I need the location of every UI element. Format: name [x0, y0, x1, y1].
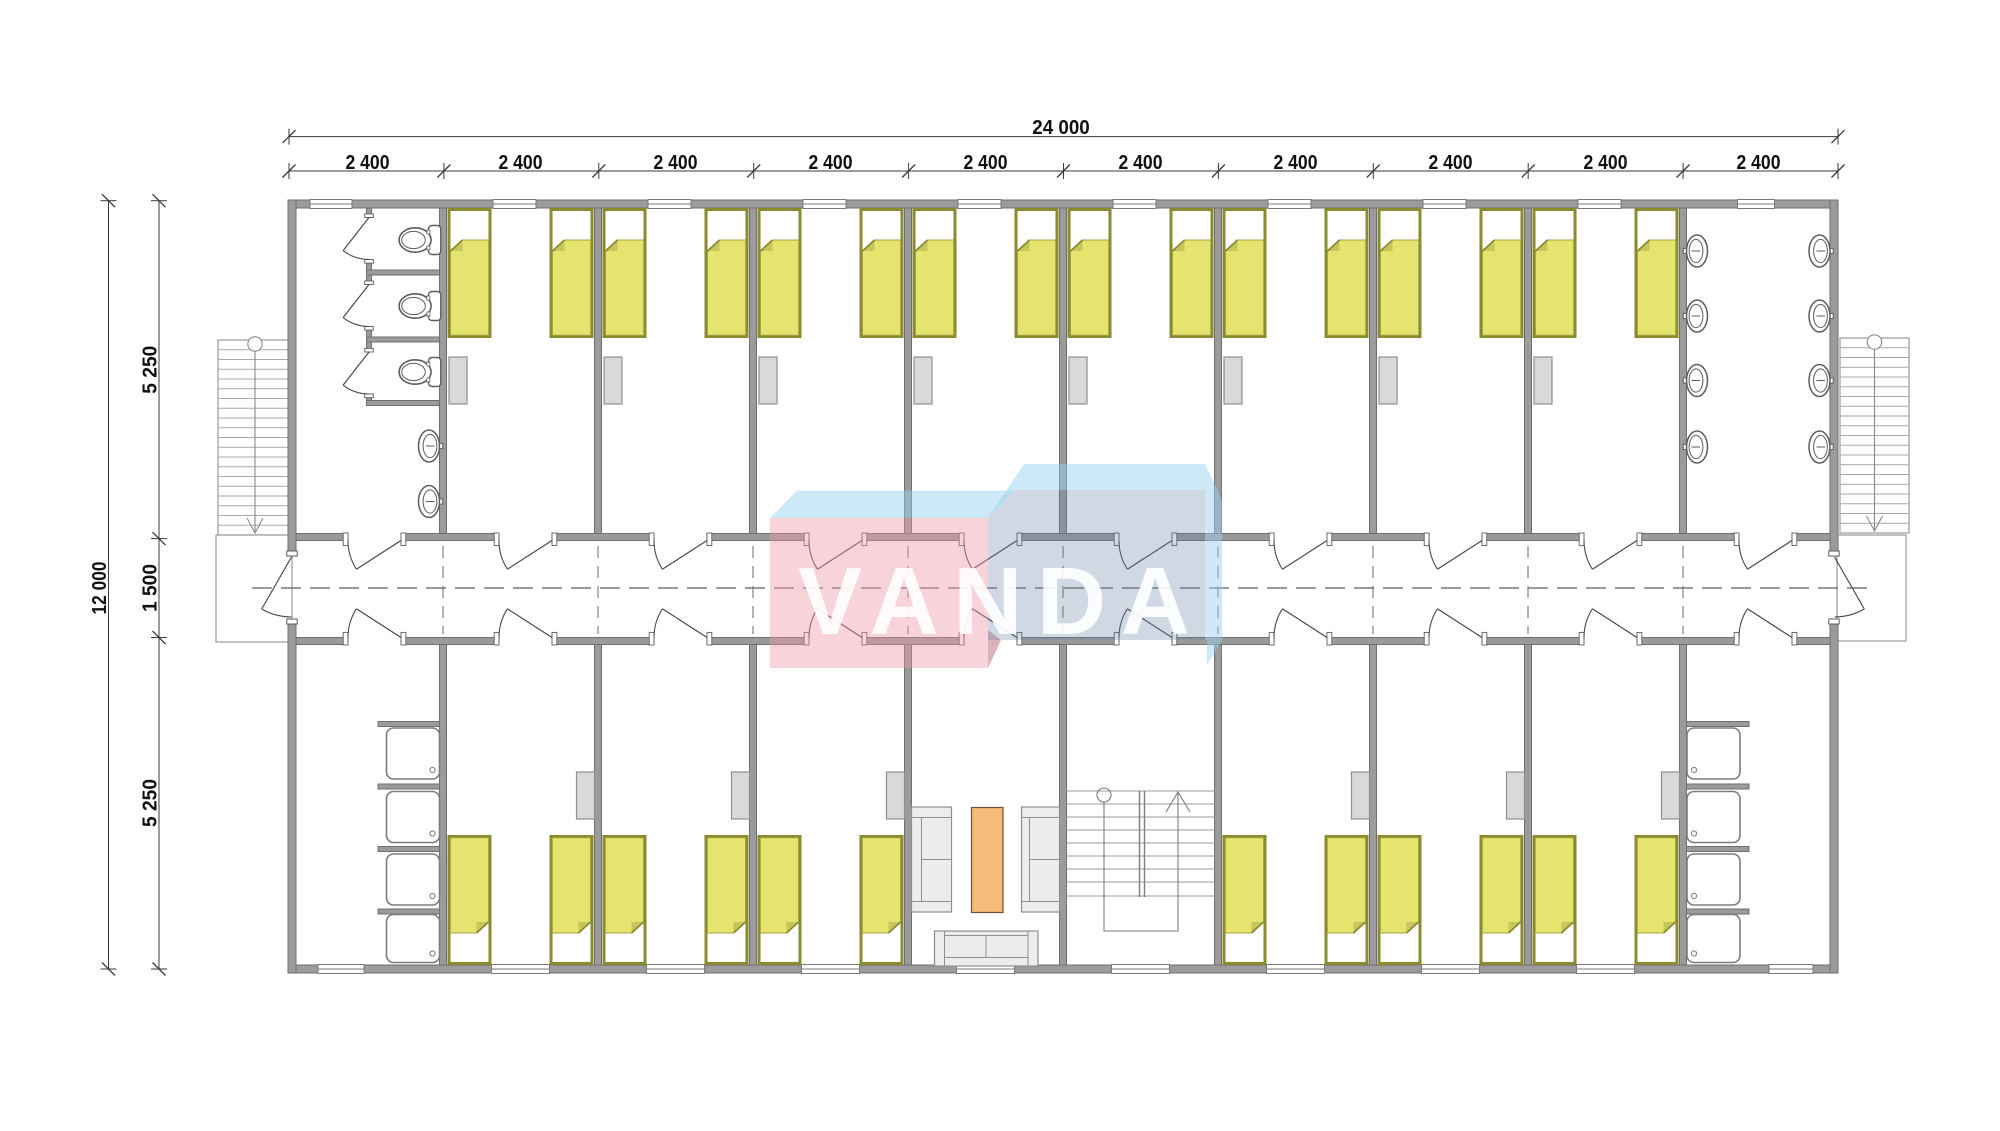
svg-text:2 400: 2 400: [1584, 151, 1628, 174]
svg-text:2 400: 2 400: [964, 151, 1008, 174]
svg-text:12 000: 12 000: [88, 562, 111, 615]
svg-text:2 400: 2 400: [499, 151, 543, 174]
svg-text:2 400: 2 400: [1429, 151, 1473, 174]
svg-text:2 400: 2 400: [346, 151, 390, 174]
svg-text:5 250: 5 250: [139, 346, 162, 394]
svg-text:2 400: 2 400: [1274, 151, 1318, 174]
svg-text:5 250: 5 250: [139, 779, 162, 827]
svg-text:2 400: 2 400: [1119, 151, 1163, 174]
svg-text:2 400: 2 400: [1737, 151, 1781, 174]
svg-text:2 400: 2 400: [809, 151, 853, 174]
svg-text:1 500: 1 500: [139, 564, 162, 612]
svg-text:24 000: 24 000: [1032, 116, 1090, 139]
svg-text:2 400: 2 400: [654, 151, 698, 174]
